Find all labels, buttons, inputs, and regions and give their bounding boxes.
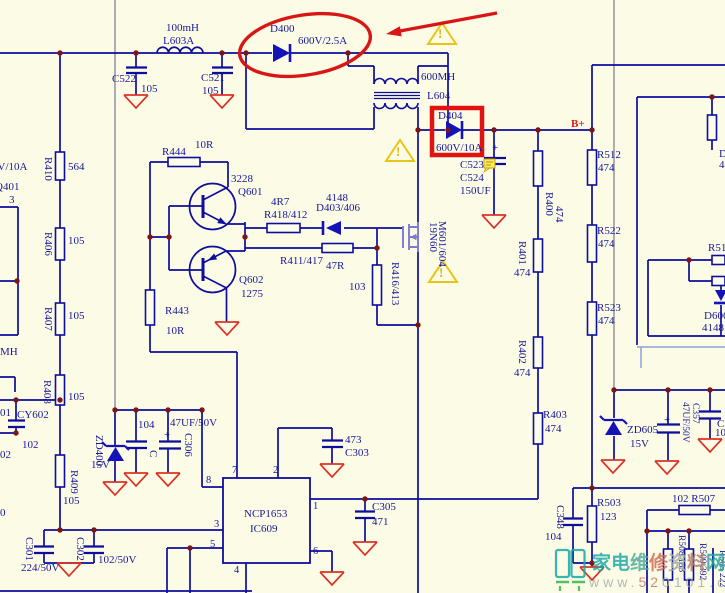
- edge-02: 02: [0, 450, 11, 461]
- ic-ref: IC609: [250, 524, 278, 535]
- watermark-site-name: 家电维修资料网: [592, 548, 725, 575]
- watermark-char: 资: [668, 548, 687, 575]
- r418-value: 4R7: [271, 197, 289, 208]
- c305-value: 471: [372, 517, 389, 528]
- r416-ref: R416/413: [389, 262, 400, 305]
- c303-value: 473: [345, 435, 362, 446]
- r503-value: 123: [600, 512, 617, 523]
- c348-value: 104: [545, 532, 562, 543]
- ic-pin1: 1: [313, 502, 318, 513]
- r51-fragment: R51: [708, 243, 725, 254]
- ic-pin2: 2: [273, 466, 278, 477]
- watermark-char: 电: [611, 548, 630, 575]
- r523-ref: R523: [597, 303, 621, 314]
- r411-ref: R411/417: [280, 256, 323, 267]
- c301-ref: C301: [23, 537, 34, 561]
- edge-mh: MH: [0, 347, 18, 358]
- watermark-char: 网: [706, 548, 725, 575]
- cy602-value: 102: [22, 440, 39, 451]
- c301-value: 224/50V: [21, 563, 60, 574]
- warning-3: !: [439, 266, 443, 279]
- r403-ref: R403: [543, 410, 567, 421]
- d404-value: 600V/10A: [436, 143, 482, 154]
- q601-ref: Q601: [238, 187, 262, 198]
- r408-value: 105: [68, 392, 85, 403]
- zd605-value: 15V: [630, 439, 649, 450]
- c524-ref: C524: [460, 173, 484, 184]
- watermark-char: 修: [649, 548, 668, 575]
- c523-ref: C523: [460, 160, 484, 171]
- c306-ref: C306: [182, 433, 193, 457]
- c521-value: 105: [202, 86, 219, 97]
- r443-ref: R443: [165, 306, 189, 317]
- c-edge-value: 10: [715, 428, 725, 439]
- l603a-value: 100mH: [166, 23, 199, 34]
- r444-value: 10R: [195, 140, 213, 151]
- c522-value: 105: [141, 84, 158, 95]
- edge-01: 01: [0, 408, 11, 419]
- c521-ref: C521: [201, 73, 225, 84]
- r418-ref: R418/412: [264, 210, 307, 221]
- xfmr-ref: L604: [427, 91, 450, 102]
- edge-600v10a: 600V/10A: [0, 162, 27, 173]
- d606-value: 4148: [702, 323, 724, 334]
- bplus-net: B+: [571, 119, 585, 130]
- c523-plus: +: [492, 143, 498, 154]
- r523-value: 474: [598, 316, 615, 327]
- r403-value: 474: [545, 424, 562, 435]
- watermark-char: 家: [592, 548, 611, 575]
- c306-value: 47UF/50V: [170, 418, 217, 429]
- q601-part: 3228: [231, 174, 253, 185]
- zd400-value: 15V: [91, 460, 110, 471]
- c348-ref: C348: [554, 505, 565, 529]
- r443-value: 10R: [166, 326, 184, 337]
- edge-q401: Q401: [0, 182, 19, 193]
- xfmr-value: 600MH: [421, 72, 455, 83]
- watermark-url-segment: 52: [638, 574, 662, 590]
- c357-value: 47UF/50V: [680, 402, 690, 443]
- watermark-char: 维: [630, 548, 649, 575]
- d400-value: 600V/2.5A: [298, 36, 347, 47]
- c303-ref: C303: [345, 448, 369, 459]
- r402-ref: R402: [516, 340, 527, 364]
- r409-ref: R409: [68, 470, 79, 494]
- r416-value: 103: [349, 282, 366, 293]
- r410-ref: R410: [42, 157, 53, 181]
- r400-value: 474: [553, 206, 564, 223]
- d606-ref: D606: [704, 311, 725, 322]
- d400-ref: D400: [270, 24, 294, 35]
- ic-pin7: 7: [232, 466, 237, 477]
- ic-pin5: 5: [210, 540, 215, 551]
- r407-ref: R407: [42, 307, 53, 331]
- r444-ref: R444: [162, 147, 186, 158]
- r410-value: 564: [68, 162, 85, 173]
- warning-1: !: [438, 27, 442, 40]
- r406-value: 105: [68, 236, 85, 247]
- ic-pin8: 8: [206, 476, 211, 487]
- r512-ref: R512: [597, 150, 621, 161]
- c306-plus: +: [164, 430, 170, 441]
- r512-value: 474: [598, 163, 615, 174]
- c357-ref: C357: [690, 403, 700, 424]
- c302-value: 102/50V: [98, 555, 137, 566]
- schematic-canvas: 100mHL603AC522105C521105D400600V/2.5A600…: [0, 0, 725, 593]
- c524-value: 150UF: [460, 186, 491, 197]
- c522-ref: C522: [112, 74, 136, 85]
- l603a-ref: L603A: [163, 36, 194, 47]
- ic-part: NCP1653: [244, 509, 287, 520]
- r407-value: 105: [68, 311, 85, 322]
- q602-part: 1275: [241, 289, 263, 300]
- watermark-url-segment: 0101: [662, 574, 709, 590]
- edge-0: 0: [0, 508, 6, 519]
- watermark-url-segment: www.: [589, 574, 638, 590]
- warning-2: !: [396, 145, 400, 158]
- r406-ref: R406: [42, 232, 53, 256]
- mosfet-ref: M601/604: [436, 221, 447, 267]
- d403-ref: D403/406: [316, 203, 360, 214]
- cy602-ref: CY602: [17, 410, 49, 421]
- c302-ref: C302: [74, 537, 85, 561]
- r401-value: 474: [514, 268, 531, 279]
- edge-frag-4: 4: [719, 160, 725, 171]
- r411-value: 47R: [326, 261, 344, 272]
- r503-ref: R503: [597, 498, 621, 509]
- zd605-ref: ZD605: [627, 425, 658, 436]
- ic-pin4: 4: [234, 566, 239, 577]
- q602-ref: Q602: [239, 275, 263, 286]
- c357-plus: +: [664, 415, 670, 426]
- d404-ref: D404: [438, 111, 462, 122]
- r522-value: 474: [598, 239, 615, 250]
- c305-ref: C305: [372, 502, 396, 513]
- watermark-char: 料: [687, 548, 706, 575]
- r507-label: 102 R507: [672, 494, 715, 505]
- c-unk-ref: C: [147, 450, 158, 457]
- watermark-url: www.520101.c0m: [589, 574, 725, 590]
- labels-layer: 100mHL603AC522105C521105D400600V/2.5A600…: [0, 0, 725, 593]
- r401-ref: R401: [516, 241, 527, 265]
- r522-ref: R522: [597, 226, 621, 237]
- c-unk-value: 104: [138, 420, 155, 431]
- r408-ref: R408: [41, 380, 52, 404]
- r402-value: 474: [514, 368, 531, 379]
- r409-value: 105: [63, 496, 80, 507]
- watermark-url-segment: .c0m: [709, 574, 725, 590]
- ic-pin3: 3: [214, 520, 219, 531]
- edge-pin3: 3: [9, 195, 15, 206]
- ic-pin6: 6: [313, 547, 318, 558]
